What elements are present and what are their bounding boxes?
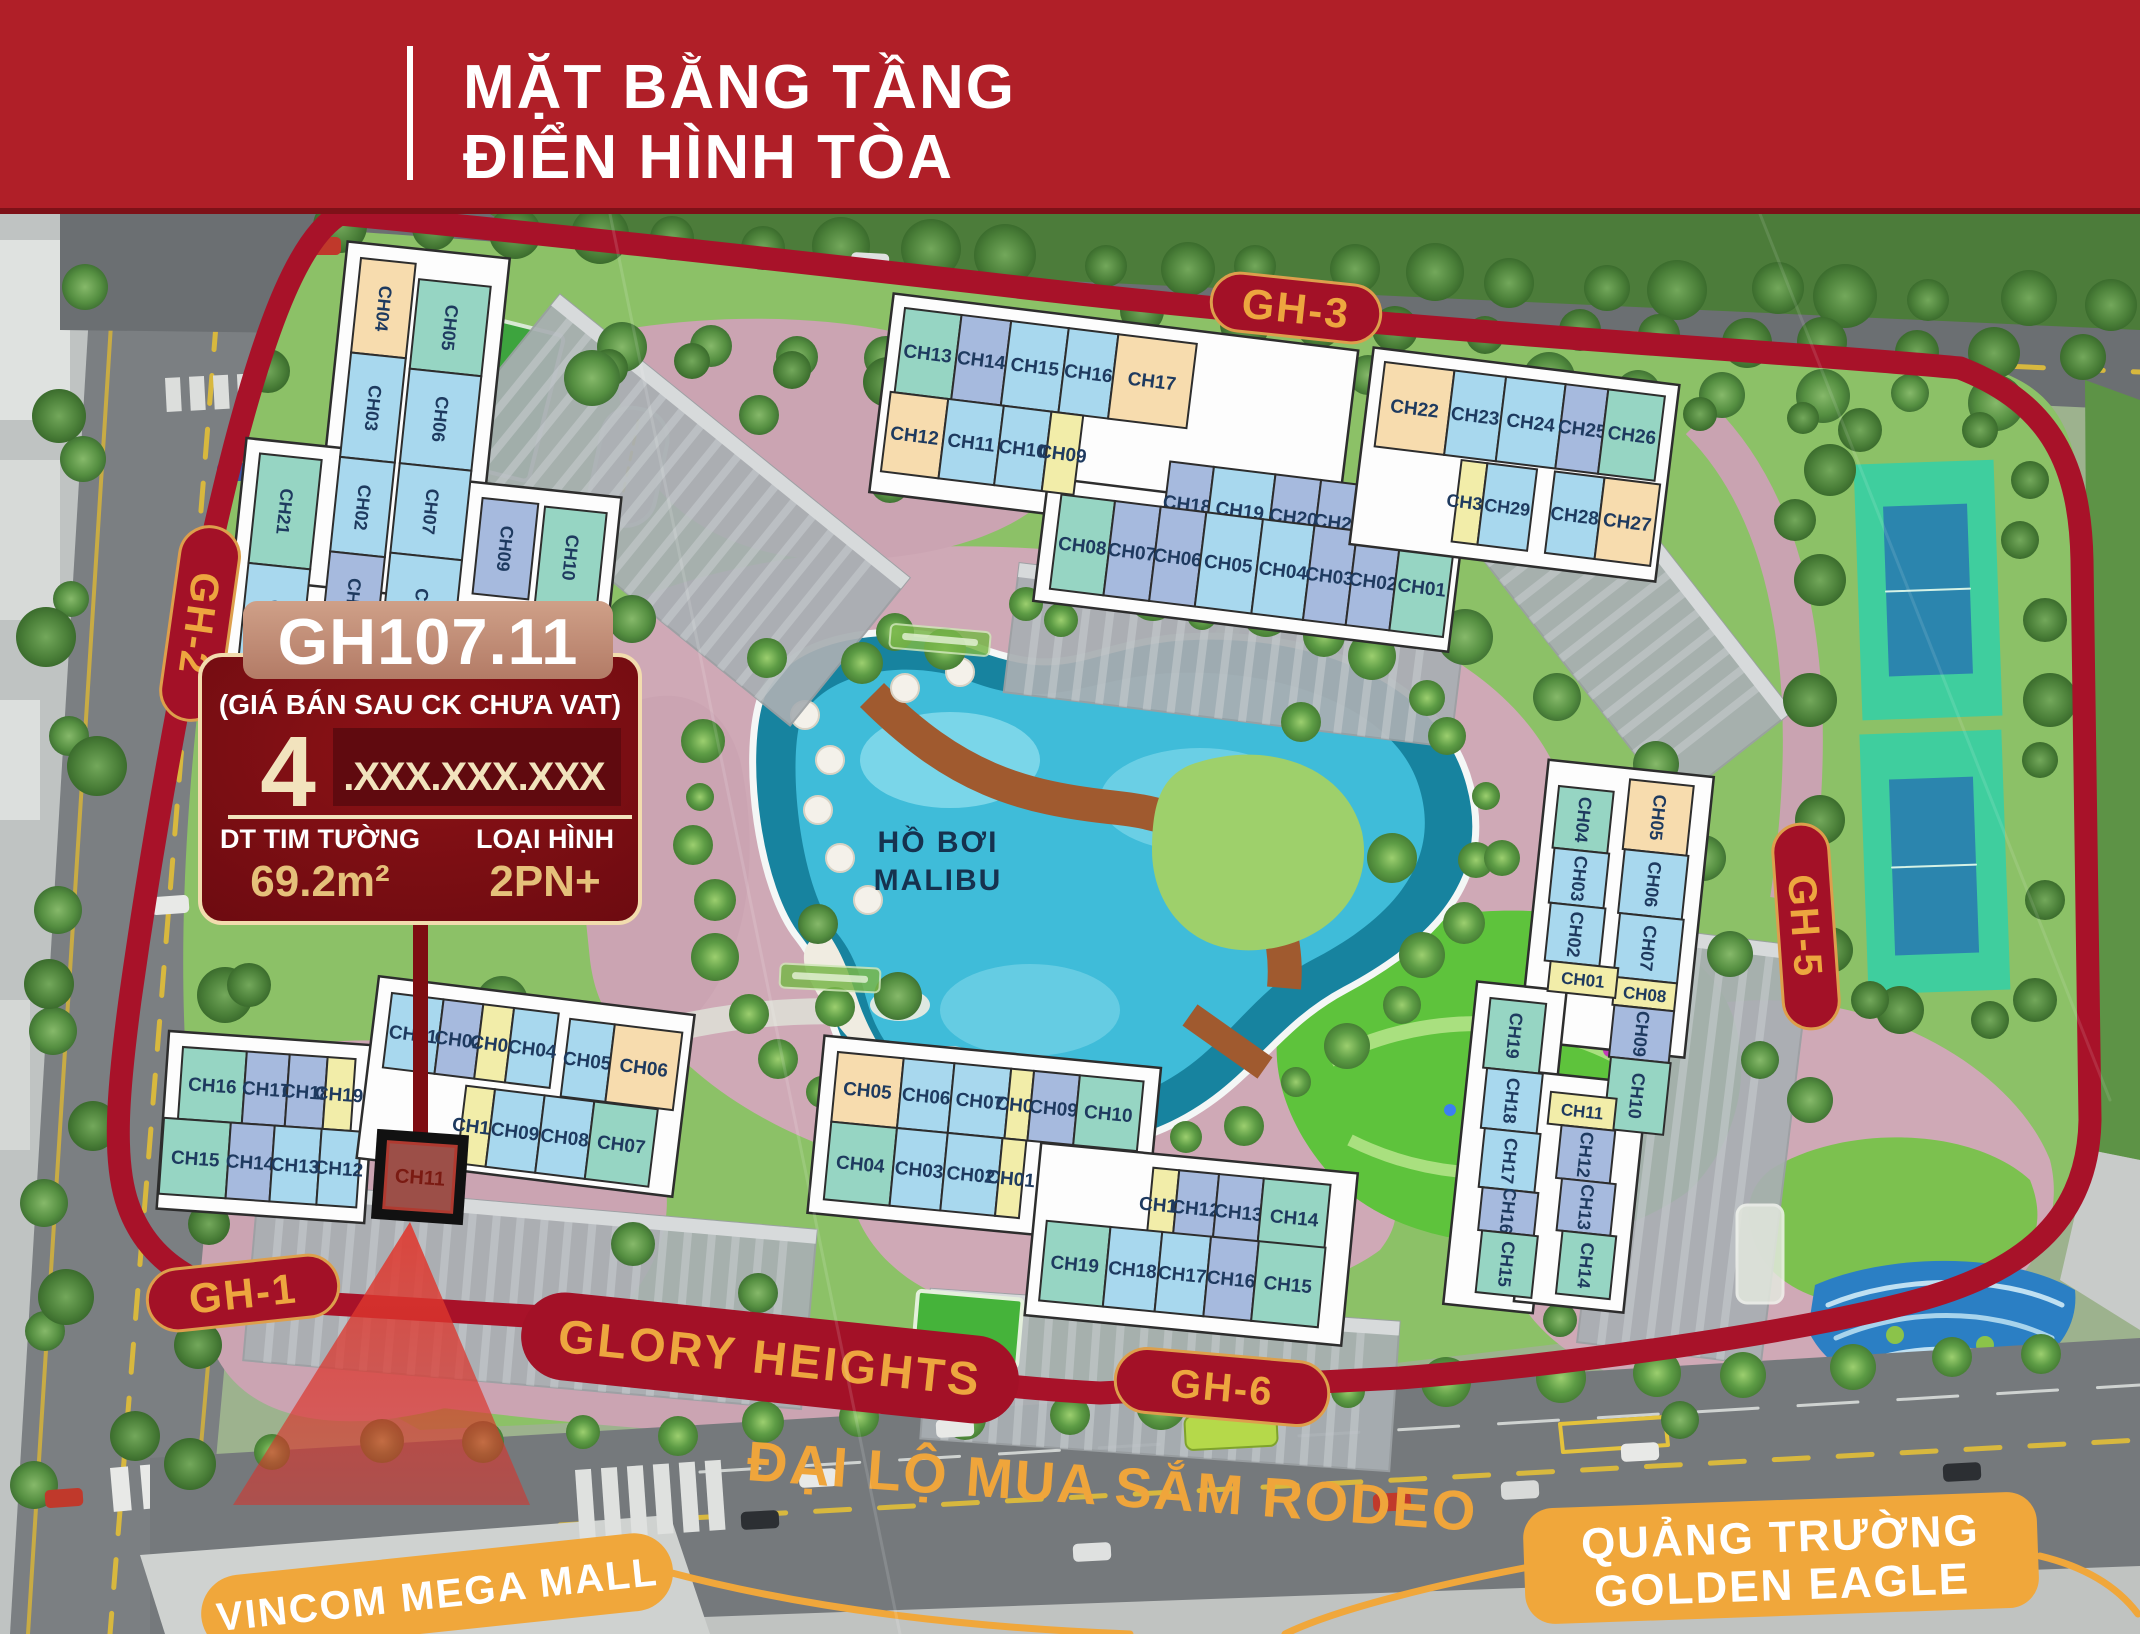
svg-text:69.2m²: 69.2m²	[250, 857, 389, 906]
svg-text:CH19: CH19	[314, 1083, 364, 1107]
svg-text:HỒ BƠI: HỒ BƠI	[878, 825, 999, 859]
svg-text:ĐIỂN HÌNH TÒA: ĐIỂN HÌNH TÒA	[463, 123, 954, 192]
svg-text:DT TIM TƯỜNG: DT TIM TƯỜNG	[220, 823, 420, 854]
svg-text:LOẠI HÌNH: LOẠI HÌNH	[476, 823, 614, 854]
svg-text:.XXX.XXX.XXX: .XXX.XXX.XXX	[343, 755, 606, 799]
svg-text:MẶT BẰNG TẦNG: MẶT BẰNG TẦNG	[463, 53, 1016, 122]
svg-text:MALIBU: MALIBU	[874, 864, 1003, 897]
svg-text:CH13: CH13	[270, 1154, 320, 1178]
svg-text:GH107.11: GH107.11	[278, 605, 579, 678]
svg-text:CH11: CH11	[394, 1165, 445, 1190]
svg-text:2PN+: 2PN+	[489, 857, 600, 906]
svg-text:GH-6: GH-6	[1168, 1362, 1275, 1415]
svg-text:CH12: CH12	[314, 1157, 364, 1181]
svg-text:4: 4	[260, 716, 316, 828]
svg-text:CH16: CH16	[187, 1074, 237, 1098]
svg-text:GH-5: GH-5	[1779, 873, 1830, 979]
svg-text:CH14: CH14	[225, 1151, 275, 1175]
svg-text:CH15: CH15	[170, 1147, 220, 1171]
